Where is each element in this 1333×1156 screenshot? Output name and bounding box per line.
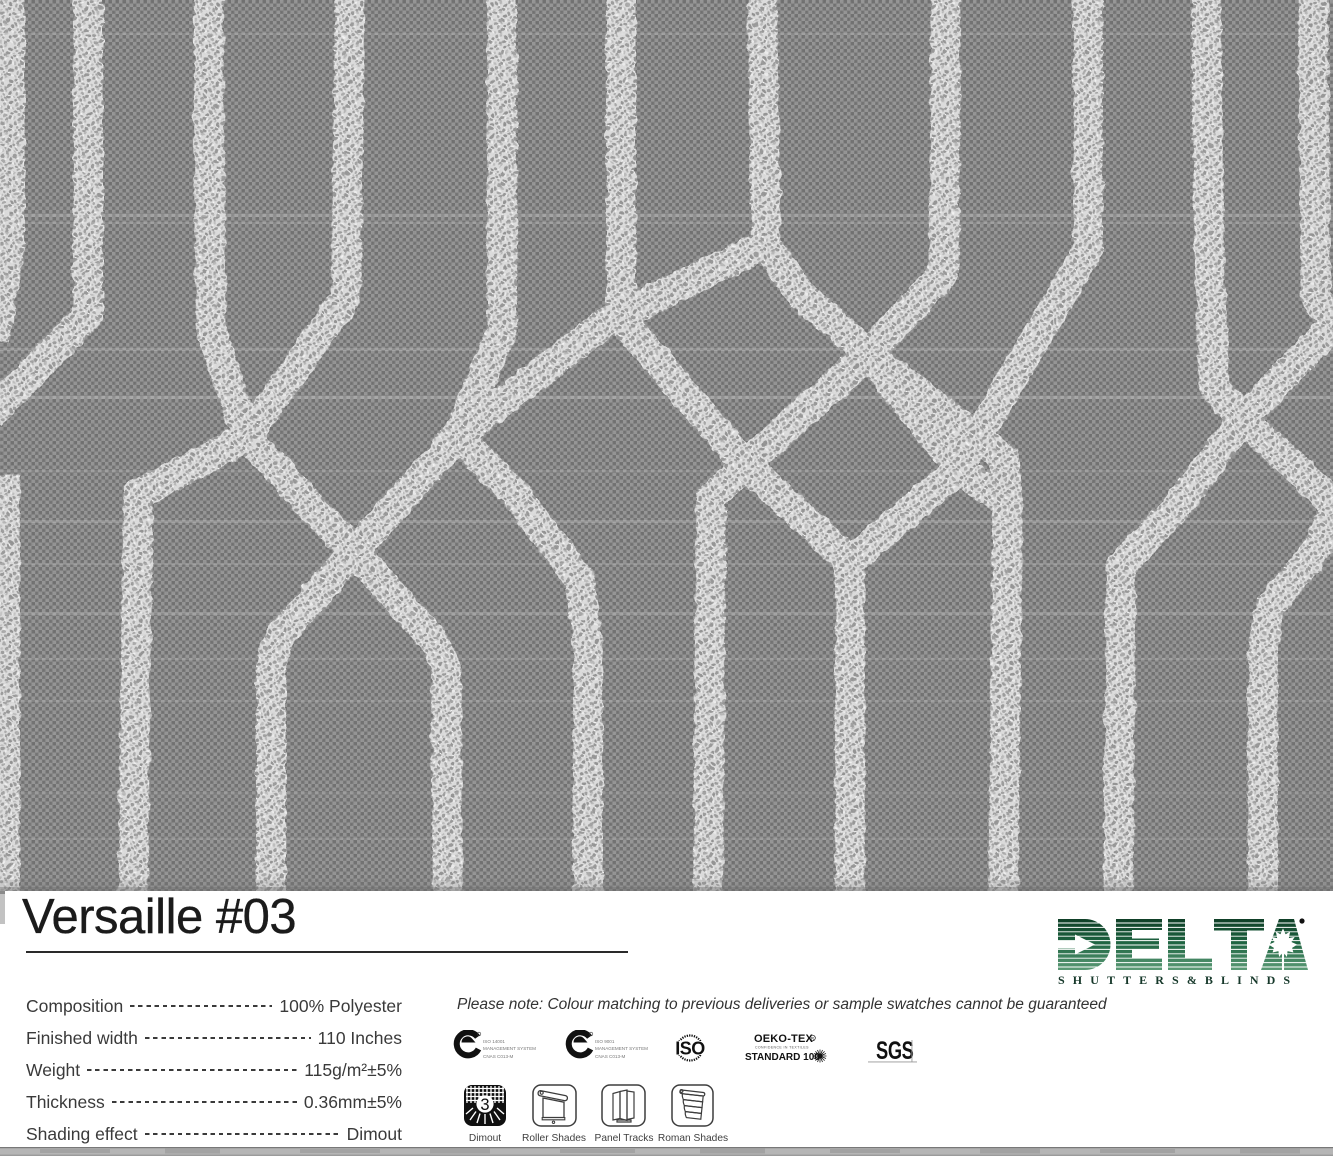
svg-text:Panel Tracks: Panel Tracks: [595, 1133, 654, 1144]
svg-text:MANAGEMENT SYSTEM: MANAGEMENT SYSTEM: [483, 1046, 536, 1051]
svg-text:Roller Shades: Roller Shades: [522, 1133, 586, 1144]
svg-text:Dimout: Dimout: [469, 1133, 501, 1144]
svg-text:ISO: ISO: [675, 1039, 705, 1059]
svg-text:CONFIDENCE IN TEXTILES: CONFIDENCE IN TEXTILES: [755, 1046, 809, 1050]
svg-text:ISO 14001: ISO 14001: [483, 1039, 505, 1044]
svg-text:3: 3: [480, 1096, 489, 1114]
svg-text:Roman Shades: Roman Shades: [658, 1133, 728, 1144]
svg-text:ISO 9001: ISO 9001: [595, 1039, 615, 1044]
svg-text:SGS: SGS: [876, 1036, 913, 1065]
svg-text:STANDARD 100: STANDARD 100: [745, 1052, 820, 1063]
svg-text:SHUTTERS&BLINDS: SHUTTERS&BLINDS: [1058, 973, 1298, 987]
svg-text:R: R: [811, 1036, 814, 1041]
svg-text:CNAS C013-M: CNAS C013-M: [595, 1054, 626, 1059]
svg-text:MANAGEMENT SYSTEM: MANAGEMENT SYSTEM: [595, 1046, 648, 1051]
svg-text:OEKO-TEX: OEKO-TEX: [754, 1033, 814, 1045]
svg-text:CNAS C013-M: CNAS C013-M: [483, 1054, 514, 1059]
